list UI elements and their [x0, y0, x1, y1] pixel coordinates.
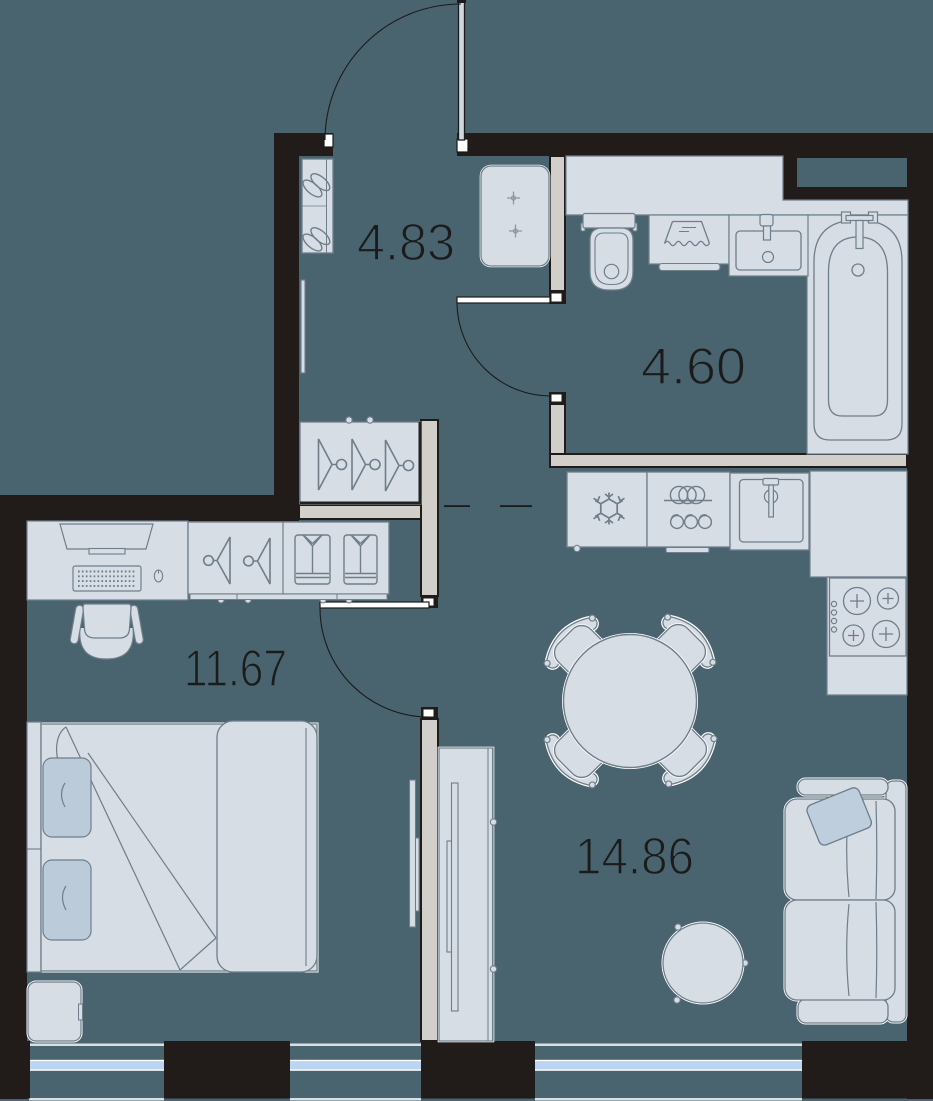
- svg-text:4.60: 4.60: [641, 338, 746, 396]
- svg-text:4.83: 4.83: [357, 214, 455, 272]
- svg-text:14.86: 14.86: [575, 828, 694, 886]
- svg-text:11.67: 11.67: [184, 640, 287, 698]
